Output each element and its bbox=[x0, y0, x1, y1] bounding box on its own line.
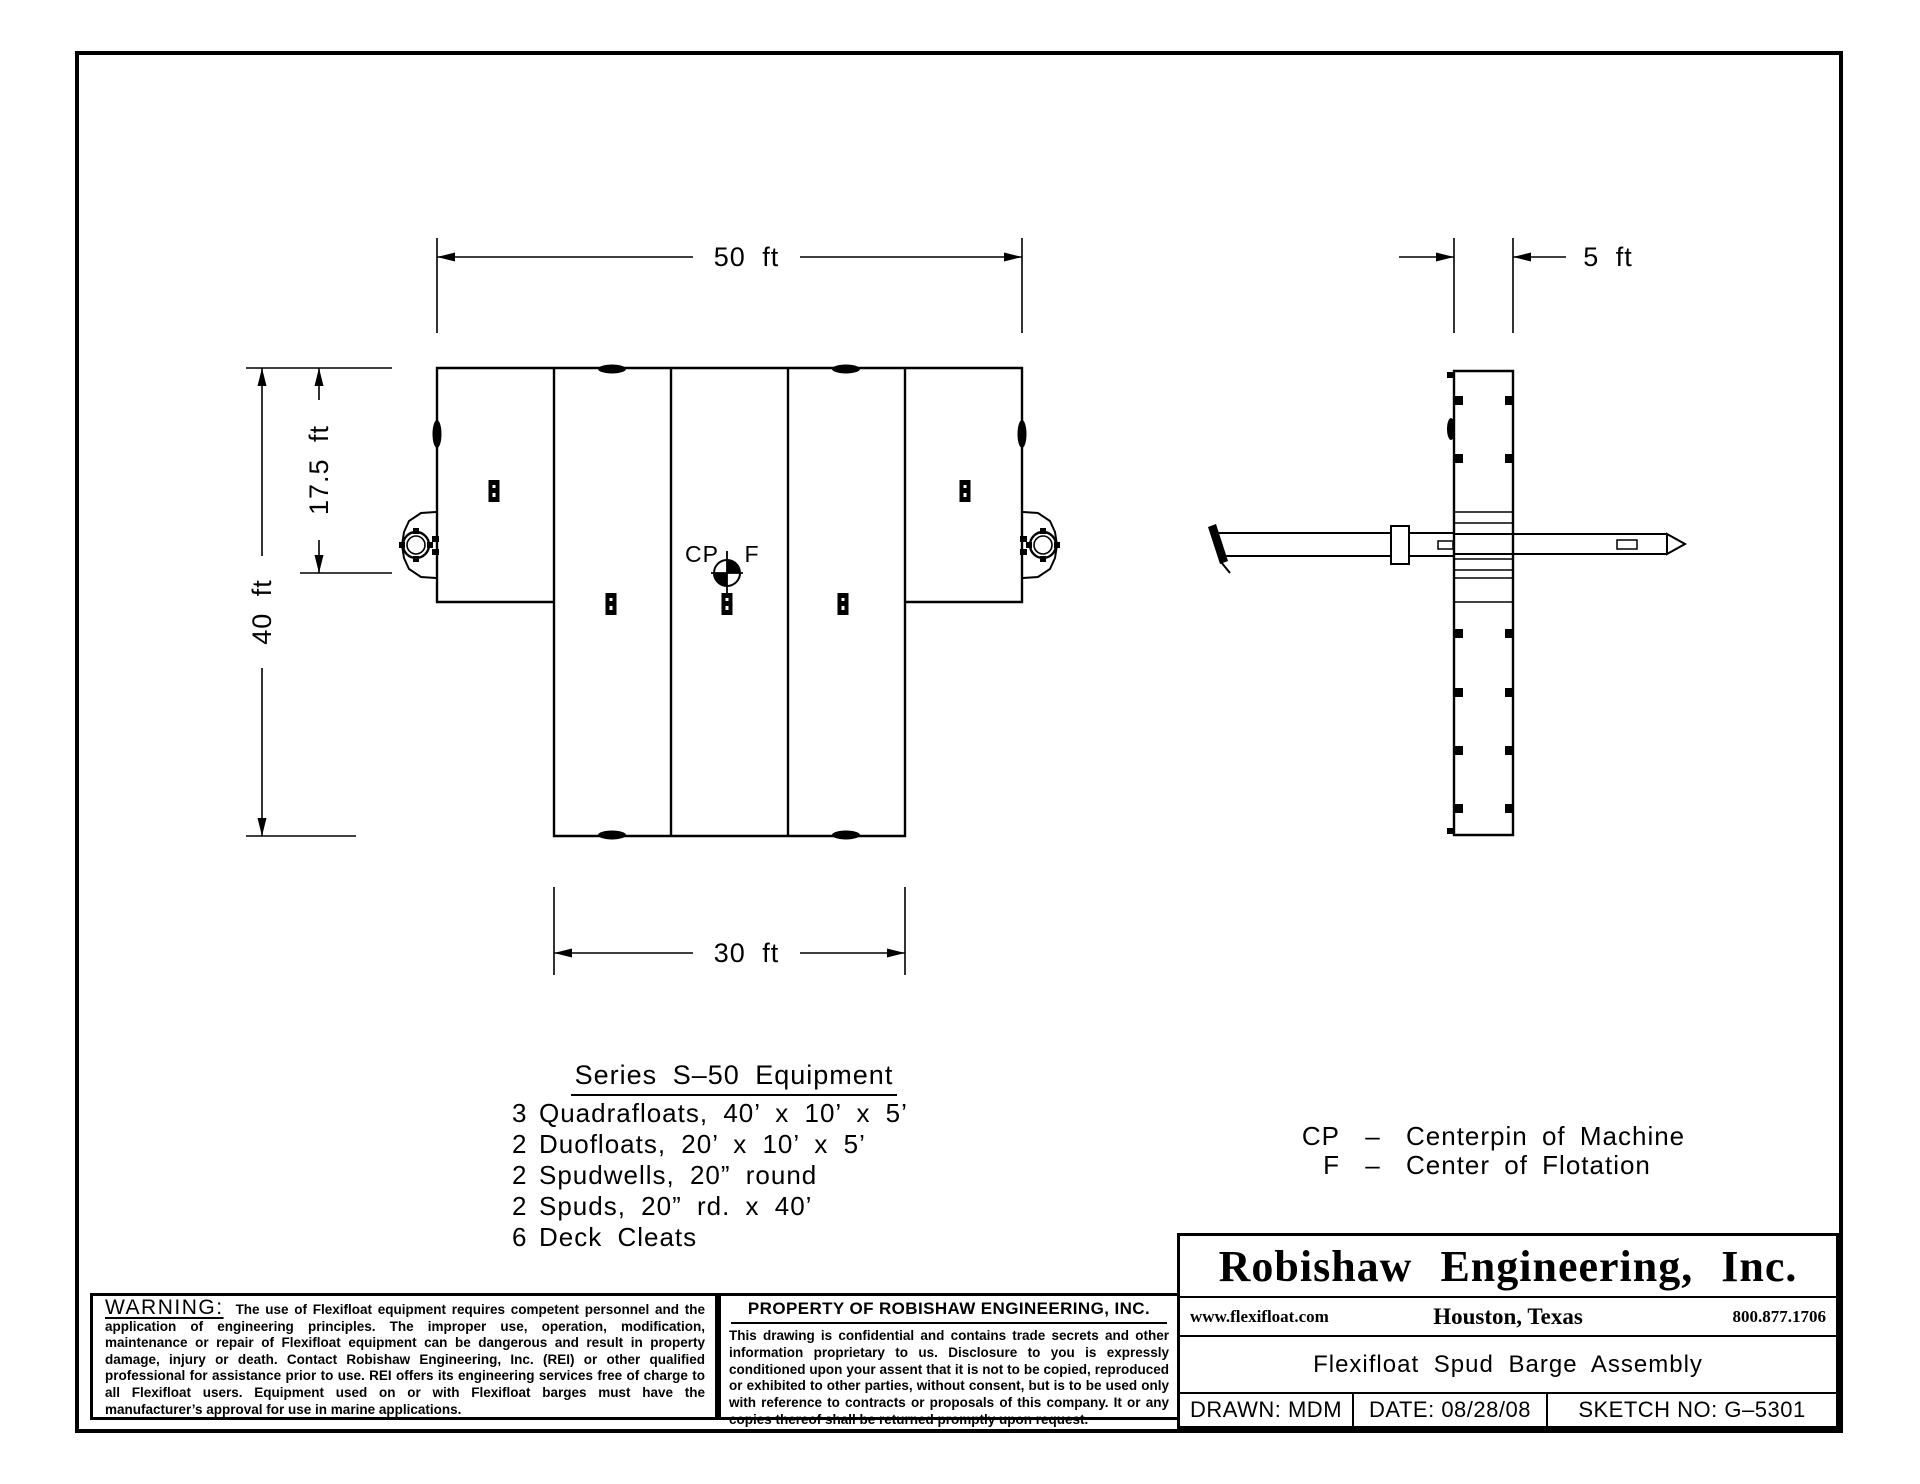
cleat-icon bbox=[1018, 420, 1027, 448]
dim-label-50ft: 50 ft bbox=[693, 241, 800, 273]
equipment-qty: 6 bbox=[504, 1222, 539, 1253]
legend-item: CP – Centerpin of Machine bbox=[1300, 1122, 1685, 1151]
drawing-sheet: 50 ft 5 ft 30 ft 40 ft 17.5 ft CP F Seri… bbox=[0, 0, 1920, 1484]
connector-icon bbox=[606, 593, 617, 615]
cleat-icon bbox=[832, 365, 860, 374]
abbreviation-legend: CP – Centerpin of Machine F – Center of … bbox=[1300, 1122, 1685, 1180]
legend-separator: – bbox=[1340, 1122, 1406, 1151]
company-website: www.flexifloat.com bbox=[1180, 1307, 1398, 1327]
equipment-desc: Deck Cleats bbox=[539, 1222, 697, 1253]
legend-abbr: F bbox=[1300, 1151, 1340, 1180]
spudwell-right-icon bbox=[1020, 512, 1060, 578]
dimension-5ft bbox=[1399, 238, 1566, 333]
equipment-title: Series S–50 Equipment bbox=[571, 1060, 898, 1096]
warning-title: WARNING: bbox=[105, 1296, 224, 1319]
connector-icon bbox=[838, 593, 849, 615]
legend-desc: Centerpin of Machine bbox=[1406, 1122, 1685, 1151]
spud-tip-detail bbox=[1617, 540, 1637, 549]
property-notice-box: PROPERTY OF ROBISHAW ENGINEERING, INC. T… bbox=[718, 1293, 1180, 1420]
equipment-desc: Spudwells, 20” round bbox=[539, 1160, 817, 1191]
drawing-title: Flexifloat Spud Barge Assembly bbox=[1180, 1337, 1836, 1392]
company-location: Houston, Texas bbox=[1398, 1304, 1618, 1330]
property-notice-body: This drawing is confidential and contain… bbox=[729, 1328, 1169, 1429]
connector-icon bbox=[960, 480, 971, 502]
spudwell-bands bbox=[1454, 512, 1513, 602]
equipment-item: 2 Duofloats, 20’ x 10’ x 5’ bbox=[504, 1129, 964, 1160]
equipment-desc: Spuds, 20” rd. x 40’ bbox=[539, 1191, 812, 1222]
connector-locks bbox=[489, 480, 971, 615]
plan-view bbox=[399, 365, 1060, 840]
equipment-qty: 2 bbox=[504, 1129, 539, 1160]
company-phone: 800.877.1706 bbox=[1618, 1307, 1836, 1327]
side-barge-outline bbox=[1454, 371, 1513, 835]
side-view bbox=[1208, 371, 1685, 835]
spud-endcap-icon bbox=[1208, 524, 1228, 564]
equipment-item: 6 Deck Cleats bbox=[504, 1222, 964, 1253]
spud bbox=[1208, 524, 1685, 573]
dim-label-40ft: 40 ft bbox=[246, 552, 278, 672]
company-name: Robishaw Engineering, Inc. bbox=[1180, 1236, 1836, 1296]
flotation-point-label: F bbox=[738, 541, 766, 567]
title-block: Robishaw Engineering, Inc. www.flexifloa… bbox=[1177, 1233, 1839, 1429]
spud-tip-icon bbox=[1667, 534, 1685, 554]
equipment-item: 2 Spuds, 20” rd. x 40’ bbox=[504, 1191, 964, 1222]
equipment-list: Series S–50 Equipment 3 Quadrafloats, 40… bbox=[504, 1060, 964, 1253]
company-contact-row: www.flexifloat.com Houston, Texas 800.87… bbox=[1180, 1296, 1836, 1337]
drawn-by-cell: DRAWN: MDM bbox=[1180, 1394, 1354, 1426]
spud-keeper-icon bbox=[1391, 526, 1409, 564]
date-cell: DATE: 08/28/08 bbox=[1354, 1394, 1548, 1426]
title-block-bottom-row: DRAWN: MDM DATE: 08/28/08 SKETCH NO: G–5… bbox=[1180, 1392, 1836, 1426]
centerpin-point-label: CP bbox=[680, 541, 724, 567]
dim-label-5ft: 5 ft bbox=[1566, 241, 1650, 273]
equipment-qty: 2 bbox=[504, 1191, 539, 1222]
cleat-icon bbox=[598, 365, 626, 374]
equipment-qty: 2 bbox=[504, 1160, 539, 1191]
spudwell-left-icon bbox=[399, 512, 439, 578]
warning-body: The use of Flexifloat equipment requires… bbox=[105, 1302, 705, 1417]
property-notice-title: PROPERTY OF ROBISHAW ENGINEERING, INC. bbox=[731, 1299, 1167, 1324]
legend-item: F – Center of Flotation bbox=[1300, 1151, 1685, 1180]
spud-detail-rect bbox=[1438, 541, 1453, 549]
legend-separator: – bbox=[1340, 1151, 1406, 1180]
side-lugs bbox=[1447, 372, 1513, 834]
equipment-items: 3 Quadrafloats, 40’ x 10’ x 5’ 2 Duofloa… bbox=[504, 1098, 964, 1253]
spud-body bbox=[1218, 533, 1667, 556]
dim-label-17-5ft: 17.5 ft bbox=[303, 410, 335, 530]
equipment-desc: Duofloats, 20’ x 10’ x 5’ bbox=[539, 1129, 866, 1160]
legend-abbr: CP bbox=[1300, 1122, 1340, 1151]
legend-desc: Center of Flotation bbox=[1406, 1151, 1651, 1180]
equipment-qty: 3 bbox=[504, 1098, 539, 1129]
equipment-item: 3 Quadrafloats, 40’ x 10’ x 5’ bbox=[504, 1098, 964, 1129]
cleat-icon bbox=[598, 831, 626, 840]
dim-label-30ft: 30 ft bbox=[693, 937, 800, 969]
cleat-icon bbox=[433, 420, 442, 448]
equipment-item: 2 Spudwells, 20” round bbox=[504, 1160, 964, 1191]
cleat-icon bbox=[832, 831, 860, 840]
equipment-title-wrap: Series S–50 Equipment bbox=[504, 1060, 964, 1096]
connector-icon bbox=[722, 593, 733, 615]
side-cleat-icon bbox=[1447, 418, 1455, 440]
sketch-no-cell: SKETCH NO: G–5301 bbox=[1548, 1394, 1836, 1426]
warning-box: WARNING:The use of Flexifloat equipment … bbox=[90, 1293, 718, 1420]
equipment-desc: Quadrafloats, 40’ x 10’ x 5’ bbox=[539, 1098, 908, 1129]
spud-endcap-foot bbox=[1221, 562, 1230, 573]
connector-icon bbox=[489, 480, 500, 502]
